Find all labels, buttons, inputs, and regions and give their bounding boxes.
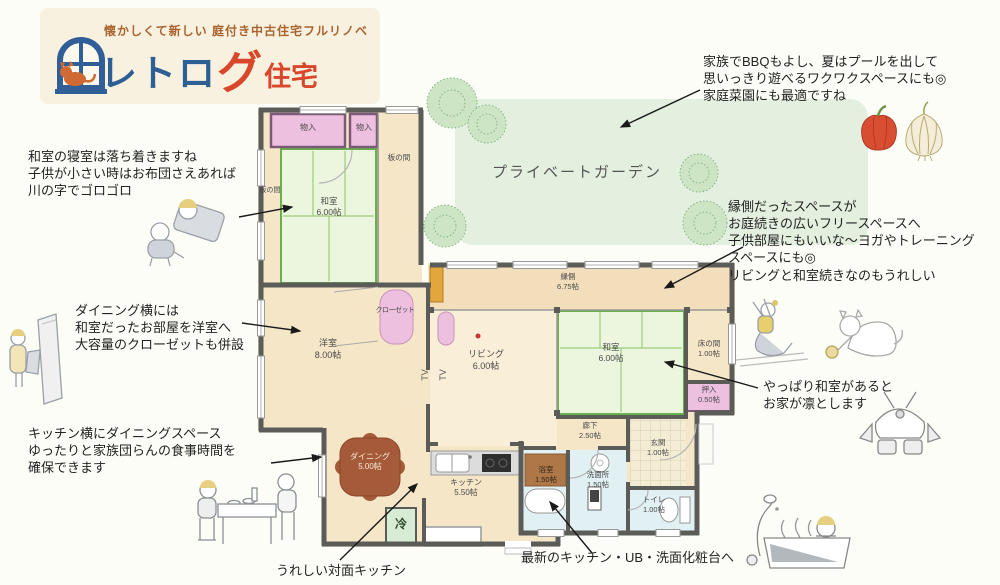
red-marker-dot [476, 334, 481, 339]
note-washitsu-dignity: やっぱり和室があると お家が凛とします [763, 378, 893, 412]
room-label-kitchen: キッチン5.50帖 [440, 478, 492, 499]
dining-family-icon [198, 474, 296, 544]
room-label-itanoma-left: 板の間 [255, 186, 285, 195]
room-label-rouka: 廊下2.50帖 [568, 421, 612, 441]
room-label-itanoma-right: 板の間 [378, 153, 420, 163]
room-label-monoire-1: 物入 [283, 123, 333, 133]
room-label-garden: プライベートガーデン [492, 161, 692, 182]
room-label-monoire-2: 物入 [346, 123, 382, 133]
flyer-canvas: 懐かしくて新しい 庭付き中古住宅フルリノベ レトログ住宅 家族でBBQもよし、夏… [0, 0, 1000, 585]
note-dining-side: ダイニング横には 和室だったお部屋を洋室へ 大容量のクローゼットも併設 [75, 302, 244, 353]
note-renewed: 最新のキッチン・UB・洗面化粧台へ [521, 549, 734, 566]
note-washitsu-sleep: 和室の寝室は落ち着きますね 子供が小さい時はお布団さえあれば 川の字でゴロゴロ [28, 148, 236, 199]
room-label-dining: ダイニング5.00帖 [342, 452, 398, 473]
room-label-bath: 浴室1.50帖 [524, 465, 568, 485]
mirror-closet-person-icon [10, 314, 62, 404]
room-label-senmen: 洗面所1.50帖 [572, 470, 624, 490]
room-label-toilet: トイレ1.00帖 [632, 495, 676, 515]
tv-mark-1: TV [420, 368, 430, 382]
tv-mark-2: TV [438, 368, 448, 382]
room-label-living: リビング6.00帖 [458, 349, 514, 372]
room-label-washitsu-e: 和室6.00帖 [586, 342, 636, 364]
logo-title-red: 住宅 [264, 62, 318, 92]
yoga-person-icon [736, 299, 808, 366]
room-label-oshiire: 押入0.50帖 [687, 385, 731, 405]
room-label-genkan: 玄関1.00帖 [636, 438, 680, 458]
logo-title-red-big: グ [217, 47, 262, 98]
room-label-washitsu-nw: 和室6.00帖 [303, 196, 355, 218]
sleeping-children-icon [148, 199, 225, 266]
note-engawa-free: 縁側だったスペースが お庭続きの広いフリースペースへ 子供部屋にもいいな～ヨガや… [728, 198, 975, 284]
note-garden-bbq: 家族でBBQもよし、夏はプールを出して 思いっきり遊べるワクワクスペースにも◎ … [703, 53, 946, 104]
note-counter-kitchen: うれしい対面キッチン [276, 562, 406, 579]
person-in-bathtub-icon [747, 495, 850, 568]
logo-title-blue: レトロ [100, 53, 217, 94]
room-label-yoshitsu: 洋室8.00帖 [300, 338, 356, 361]
logo-background: 懐かしくて新しい 庭付き中古住宅フルリノベ レトログ住宅 [40, 8, 380, 104]
cat-with-ball-icon [826, 310, 902, 358]
room-label-fridge: 冷 [386, 515, 416, 532]
room-label-engawa: 縁側6.75帖 [545, 272, 591, 292]
note-kitchen-dining: キッチン横にダイニングスペース ゆったりと家族団らんの食事時間を 確保できます [28, 425, 236, 476]
logo-title: レトログ住宅 [100, 34, 318, 99]
gas-stove-icon [482, 454, 511, 472]
room-label-closet: クローゼット [370, 306, 420, 315]
garlic-icon [906, 102, 942, 161]
room-label-tokonoma: 床の間1.00帖 [687, 339, 731, 359]
